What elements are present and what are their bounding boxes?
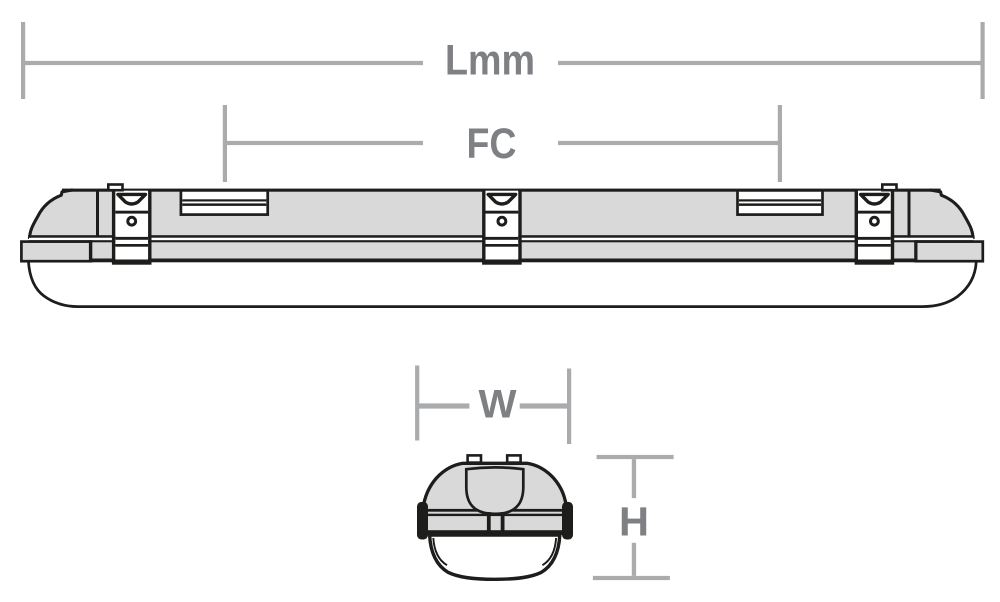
- svg-text:H: H: [619, 499, 649, 545]
- svg-text:Lmm: Lmm: [445, 38, 535, 85]
- svg-text:W: W: [479, 383, 517, 427]
- svg-text:FC: FC: [467, 120, 517, 168]
